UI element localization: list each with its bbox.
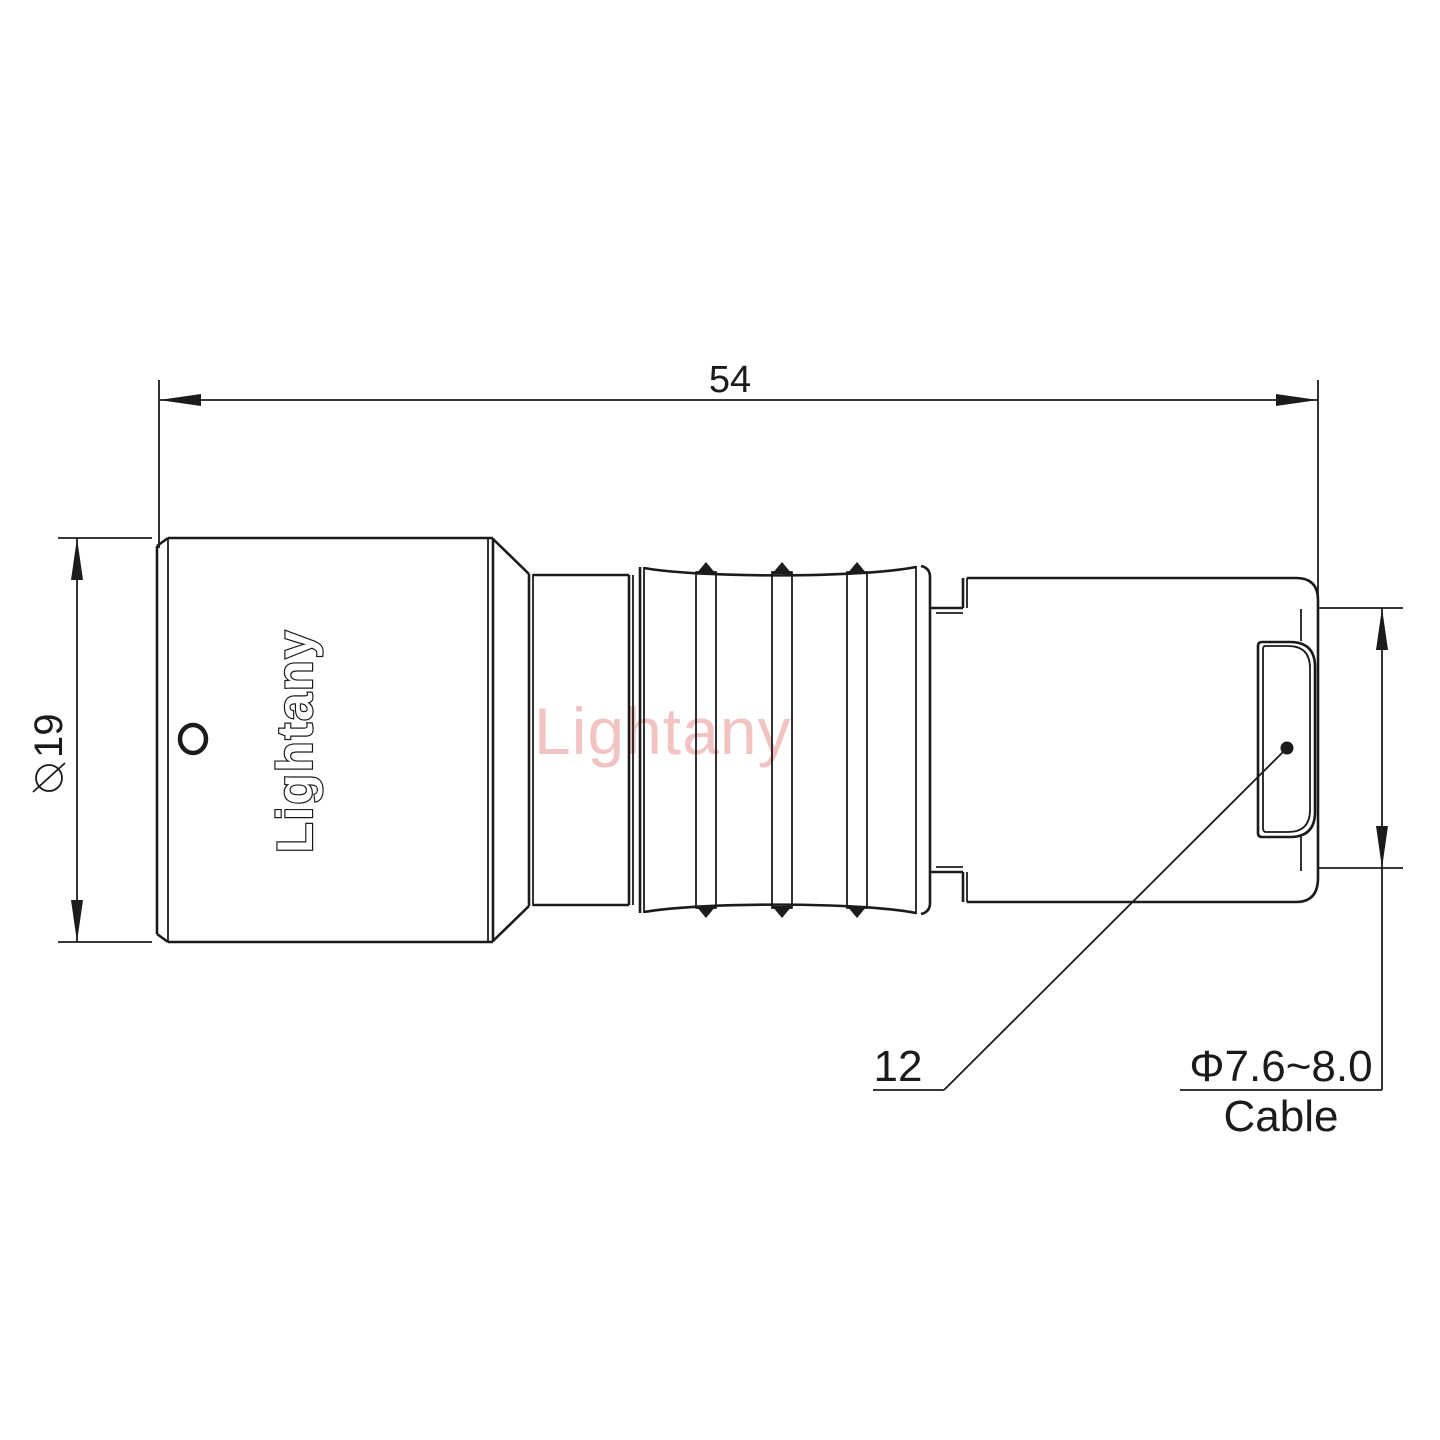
bushing-inner-outline: [1263, 646, 1310, 832]
knurl-band-strip: [847, 572, 867, 908]
knurl-band-top-tip: [696, 562, 716, 574]
knurl-band-bottom-tip: [847, 906, 867, 918]
cable-label: Cable: [1224, 1092, 1339, 1141]
knurl-band-bottom-tip: [772, 906, 792, 918]
knurl-band-top-tip: [847, 562, 867, 574]
diameter-label: 19: [27, 714, 71, 793]
taper-transition: [493, 539, 533, 941]
arrowhead-down-icon: [71, 900, 83, 942]
arrowhead-down-icon: [1376, 826, 1388, 868]
arrowhead-left-icon: [159, 394, 201, 406]
knurl-band-3: [847, 562, 867, 918]
cable-dimension: Φ7.6~8.0 Cable: [1180, 608, 1403, 1141]
bushing-callout: 12: [873, 742, 1294, 1092]
leader-line: [944, 748, 1287, 1090]
neck-groove: [930, 578, 967, 902]
connector-technical-drawing: Lightany 54 19: [0, 0, 1440, 1440]
neck-edges: [930, 608, 963, 872]
knurl-band-top-tip: [772, 562, 792, 574]
diameter-dimension-value: 19: [27, 714, 71, 759]
diameter-dimension: 19: [27, 538, 152, 942]
brand-engraving-text: Lightany: [267, 629, 323, 853]
barrel-top-bottom-edges: [168, 538, 493, 942]
release-hole: [180, 725, 206, 753]
watermark-text: Lightany: [534, 694, 792, 768]
barrel-chamfers: [157, 538, 168, 942]
arrowhead-up-icon: [71, 538, 83, 580]
neck-inner-edges: [936, 613, 963, 867]
taper-slants: [493, 539, 529, 941]
arrowhead-up-icon: [1376, 608, 1388, 650]
cable-diameter-range: Φ7.6~8.0: [1189, 1042, 1372, 1091]
rear-body: [967, 578, 1318, 902]
length-dimension-value: 54: [709, 359, 751, 401]
arrowhead-right-icon: [1276, 394, 1318, 406]
knurl-band-bottom-tip: [696, 906, 716, 918]
overall-length-dimension: 54: [159, 359, 1318, 598]
rear-body-outline: [967, 578, 1318, 902]
bushing-dimension-value: 12: [874, 1042, 923, 1091]
bushing-outer-outline: [1258, 642, 1315, 837]
sleeve-right-face: [921, 566, 930, 914]
diameter-symbol-icon: [33, 763, 65, 792]
cable-bushing: [1258, 642, 1315, 837]
connector-technical-drawing-page: Lightany 54 19: [0, 0, 1440, 1440]
leader-dot: [1281, 742, 1294, 755]
main-barrel: Lightany: [157, 538, 493, 942]
